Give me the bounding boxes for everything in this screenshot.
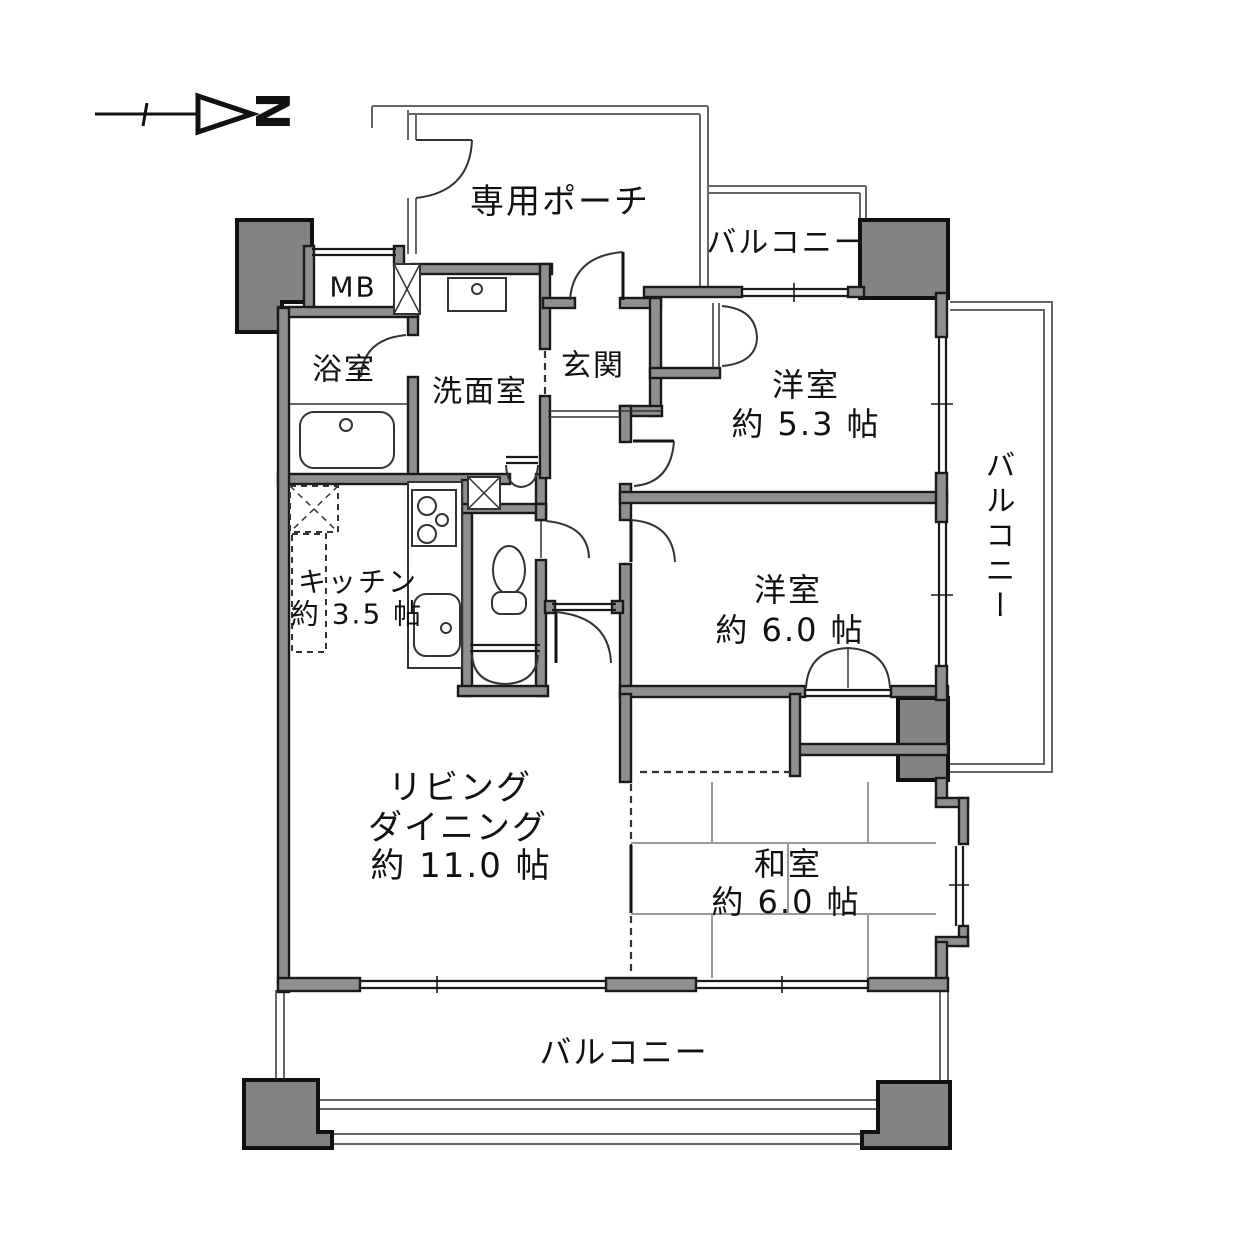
window — [939, 522, 946, 666]
window — [742, 289, 848, 296]
label-kitchen-size: 約 3.5 帖 — [291, 598, 423, 631]
bay-window — [956, 846, 963, 926]
pillar — [862, 1082, 950, 1148]
window — [360, 981, 606, 988]
bedroom2-door-arc — [631, 520, 675, 562]
wall-segment — [408, 317, 418, 335]
balcony-side-screen — [940, 990, 948, 1082]
storage-folding-doors — [472, 655, 538, 684]
label-balcony-bottom: バルコニー — [539, 1033, 708, 1071]
living-door-frame — [552, 604, 616, 610]
balcony-railing — [332, 1134, 862, 1144]
wall-segment — [540, 396, 550, 478]
pillar — [898, 698, 948, 780]
label-living-dining-3: 約 11.0 帖 — [370, 846, 551, 886]
washbasin-faucet-icon — [472, 284, 482, 294]
wall-segment — [620, 694, 631, 782]
window — [939, 337, 946, 473]
kitchen-sink-drain-icon — [441, 623, 451, 633]
closet-door-track — [805, 690, 891, 696]
wall-segment — [936, 666, 947, 700]
wall-segment — [620, 564, 631, 696]
wall-segment — [959, 798, 968, 844]
stove-burner-icon — [436, 514, 448, 526]
toilet-tank — [492, 592, 526, 614]
bathtub-faucet-icon — [340, 419, 352, 431]
wall-segment — [278, 978, 360, 991]
floor-plan-svg: N — [0, 0, 1252, 1252]
north-arrow: N — [95, 92, 299, 133]
label-western-room-2-size: 約 6.0 帖 — [715, 611, 864, 649]
toilet-door-arc — [546, 521, 589, 558]
wall-segment — [408, 377, 418, 480]
label-western-room-1: 洋室 — [772, 366, 840, 404]
label-entrance: 玄関 — [561, 349, 625, 384]
wall-segment — [936, 293, 947, 337]
label-kitchen: キッチン — [298, 566, 418, 599]
wall-segment — [304, 246, 314, 316]
north-arrow-tick — [143, 103, 147, 126]
label-living-dining-1: リビング — [388, 768, 532, 808]
wall-segment — [868, 978, 948, 991]
label-balcony-top: バルコニー — [706, 226, 865, 261]
wall-segment — [606, 978, 696, 991]
linen-closet-track — [506, 457, 538, 463]
entry-closet-panels — [713, 303, 719, 368]
label-japanese-room-size: 約 6.0 帖 — [711, 883, 860, 921]
label-bathroom: 浴室 — [312, 353, 376, 388]
label-western-room-1-size: 約 5.3 帖 — [731, 405, 880, 443]
north-arrow-head-icon — [198, 96, 252, 132]
balcony-railing — [318, 1100, 878, 1109]
label-balcony-right: バルコニー — [980, 450, 1015, 625]
entry-closet-doors — [722, 306, 757, 366]
balcony-top-outline — [708, 186, 866, 220]
wall-segment — [458, 686, 548, 696]
bedroom1-door-arc — [634, 441, 674, 486]
wall-segment — [644, 287, 742, 297]
wall-segment — [278, 308, 289, 992]
living-door-arc — [556, 612, 611, 663]
stove-burner-icon — [418, 525, 436, 543]
wall-segment — [612, 601, 623, 613]
wall-segment — [620, 492, 947, 503]
label-western-room-2: 洋室 — [754, 571, 822, 609]
wall-segment — [536, 560, 546, 696]
window — [312, 249, 396, 255]
wall-segment — [536, 504, 546, 520]
label-porch: 専用ポーチ — [470, 182, 650, 222]
floor-plan-page: N — [0, 0, 1252, 1252]
wall-segment — [936, 473, 947, 522]
pillar — [244, 1080, 332, 1148]
pillar — [860, 220, 948, 298]
storage-door-track — [470, 645, 540, 651]
wall-segment — [620, 686, 805, 697]
label-living-dining-2: ダイニング — [368, 808, 548, 848]
north-label: N — [245, 92, 299, 133]
wall-segment — [412, 264, 552, 274]
label-washroom: 洗面室 — [432, 375, 528, 410]
balcony-side-screen — [276, 990, 284, 1080]
porch-door-arc — [416, 140, 472, 198]
wall-segment — [650, 368, 720, 378]
wall-segment — [650, 298, 661, 416]
front-door-arc — [570, 252, 623, 300]
wall-segment — [795, 744, 948, 755]
label-meter-box: MB — [329, 271, 376, 304]
wall-segment — [790, 694, 800, 776]
wall-segment — [848, 287, 864, 297]
toilet-bowl — [493, 546, 525, 594]
wall-segment — [545, 601, 555, 613]
stove-burner-icon — [418, 497, 436, 515]
label-japanese-room: 和室 — [754, 845, 822, 883]
